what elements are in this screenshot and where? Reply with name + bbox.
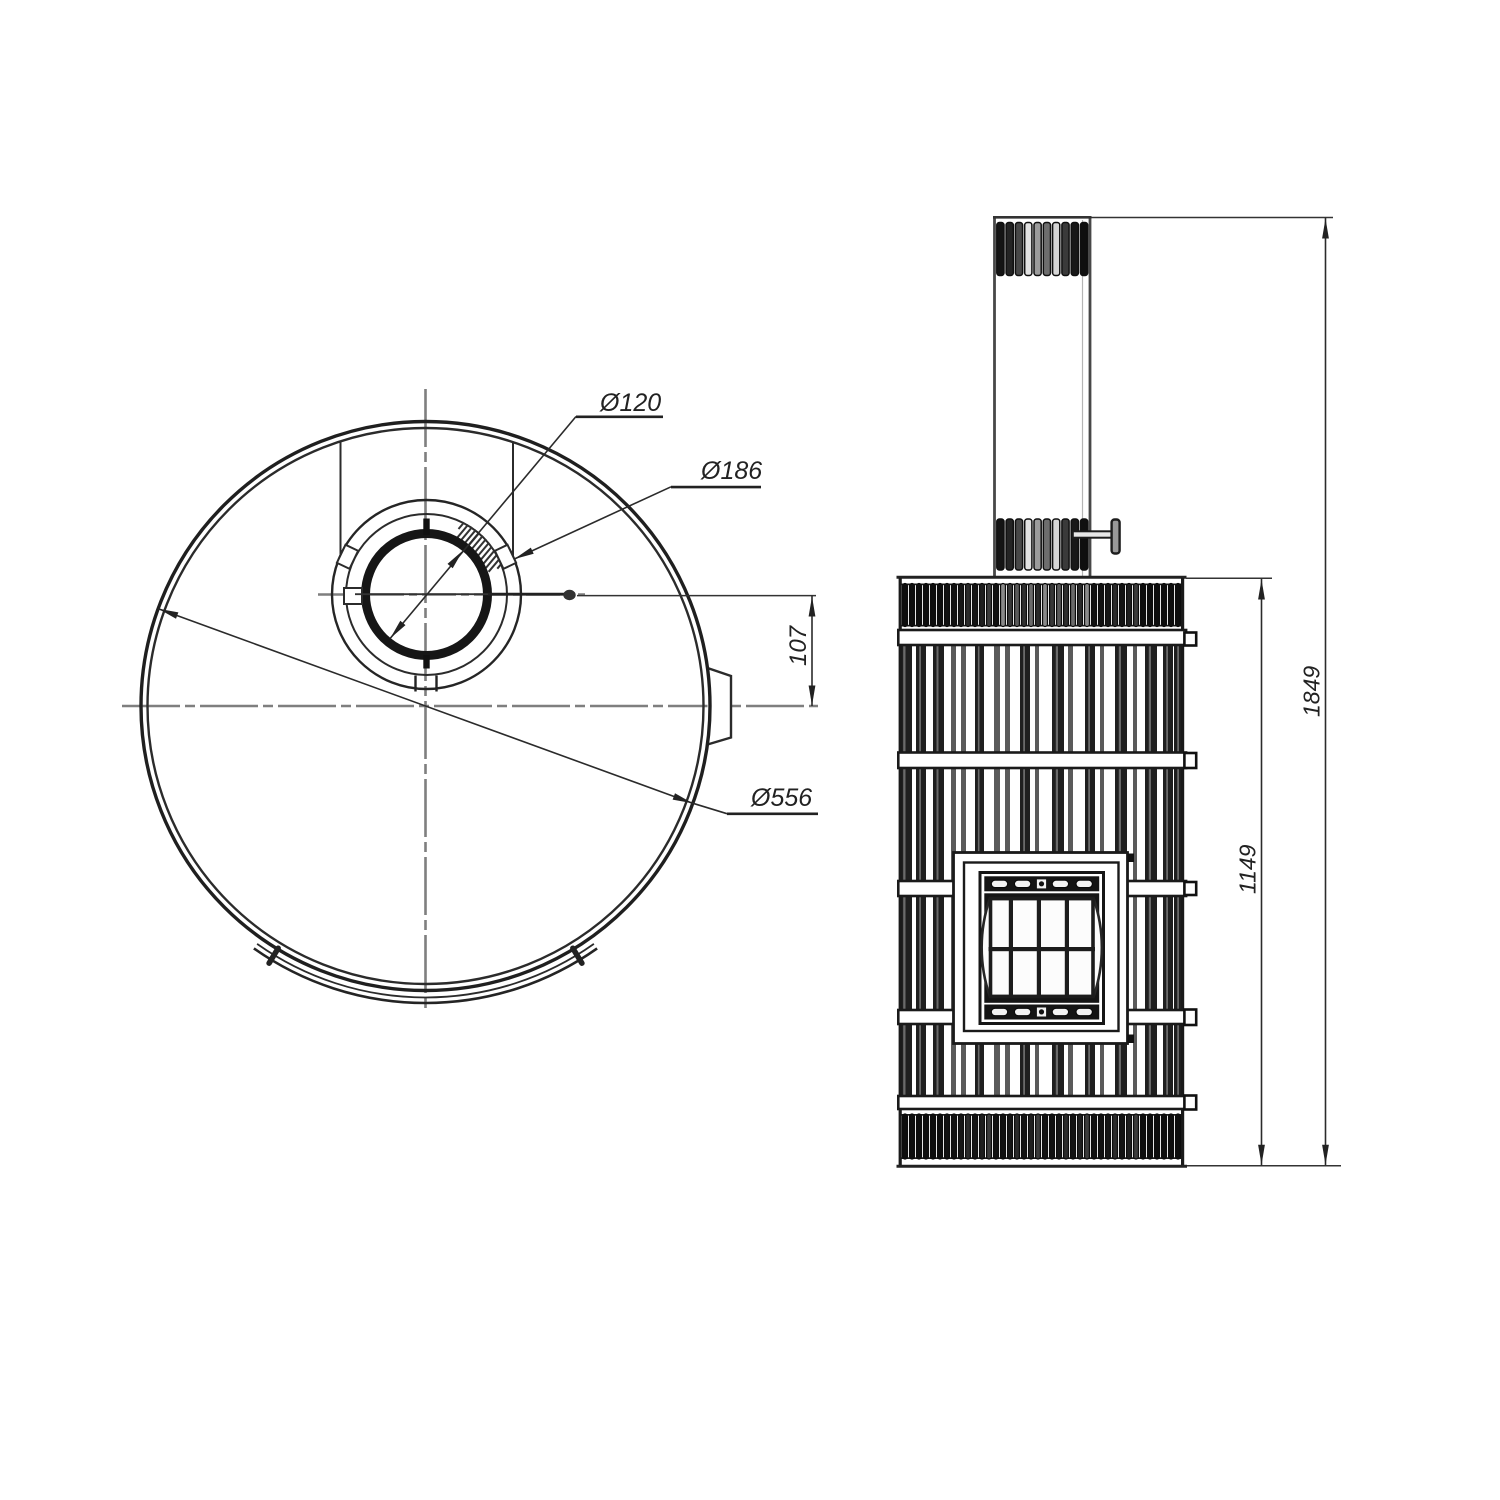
svg-text:Ø186: Ø186 (700, 457, 762, 485)
svg-text:Ø556: Ø556 (750, 784, 812, 812)
svg-text:1149: 1149 (1235, 844, 1261, 894)
svg-text:1849: 1849 (1299, 666, 1325, 717)
svg-text:Ø120: Ø120 (599, 389, 661, 417)
svg-text:107: 107 (785, 624, 812, 666)
